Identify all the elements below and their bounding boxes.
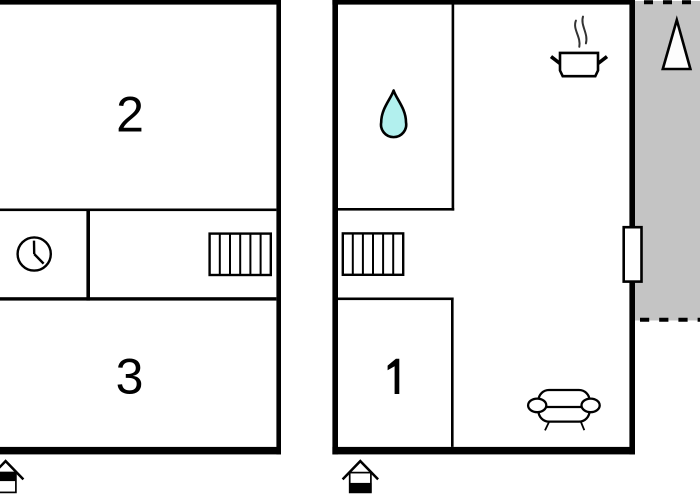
svg-text:3: 3 — [116, 348, 144, 404]
svg-text:2: 2 — [116, 87, 144, 143]
